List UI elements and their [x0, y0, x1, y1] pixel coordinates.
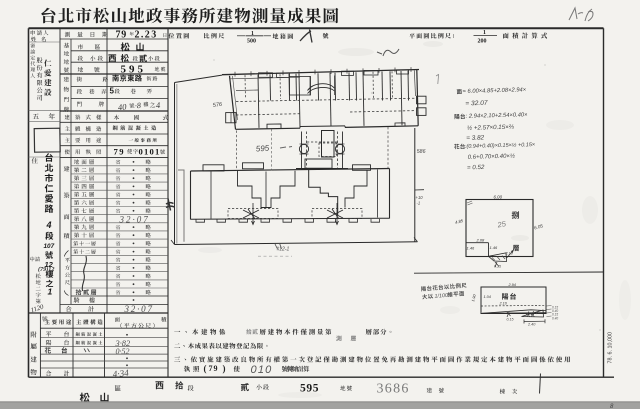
svg-text:2.08: 2.08 [476, 238, 486, 243]
svg-text:4: 4 [46, 220, 52, 230]
svg-text:2.10: 2.10 [499, 302, 508, 306]
svg-text:4: 4 [155, 100, 161, 110]
svg-text:200: 200 [478, 38, 487, 44]
svg-text:0.15: 0.15 [507, 318, 514, 322]
svg-text:): ) [223, 364, 226, 374]
svg-text:1.46: 1.46 [467, 246, 476, 251]
svg-text:= 3.82: = 3.82 [466, 134, 485, 141]
svg-text:3686: 3686 [377, 381, 410, 396]
svg-text:+10: +10 [416, 195, 424, 200]
svg-text:6.00: 6.00 [494, 195, 503, 200]
svg-text:0.6+0.70×0.40×½: 0.6+0.70×0.40×½ [468, 153, 515, 161]
svg-text:(79)12: (79)12 [38, 266, 55, 273]
svg-text:½ +2.57×0.15×⅔: ½ +2.57×0.15×⅔ [467, 124, 515, 132]
svg-text:#12-1: #12-1 [277, 247, 290, 253]
svg-text:-1: -1 [417, 201, 421, 206]
svg-text:2.94: 2.94 [508, 283, 516, 287]
svg-text::(0.94+0.40)×0.15×½ +0.15×: :(0.94+0.40)×0.15×½ +0.15× [465, 141, 535, 150]
svg-text:79: 79 [114, 146, 126, 156]
svg-text:79: 79 [209, 364, 219, 373]
svg-text:5: 5 [110, 86, 115, 95]
svg-text:4.85: 4.85 [454, 218, 464, 225]
svg-text::: : [453, 34, 455, 40]
svg-text:595: 595 [256, 144, 270, 154]
svg-text:1: 1 [483, 30, 486, 36]
svg-text:1.46: 1.46 [490, 245, 499, 250]
svg-text:2.23: 2.23 [135, 30, 158, 41]
svg-text:595: 595 [121, 63, 147, 75]
svg-text:0.40: 0.40 [552, 316, 558, 320]
svg-text:586: 586 [417, 149, 426, 155]
svg-text:2.10: 2.10 [505, 252, 514, 256]
svg-text:0·52: 0·52 [116, 347, 130, 356]
svg-text:32·07: 32·07 [124, 304, 154, 314]
svg-text:1/100: 1/100 [434, 293, 448, 300]
svg-text:0101: 0101 [139, 146, 161, 156]
svg-text:= 6.00×4.85+2.08×2.94×: = 6.00×4.85+2.08×2.94× [462, 87, 526, 95]
svg-text:79: 79 [116, 30, 128, 41]
svg-text:= 32.07: = 32.07 [465, 100, 488, 108]
svg-text:32·07: 32·07 [119, 215, 150, 225]
svg-text:= 0.52: = 0.52 [467, 164, 485, 171]
svg-text:576: 576 [212, 102, 223, 109]
svg-text:40: 40 [117, 101, 127, 112]
svg-text:2.40: 2.40 [527, 323, 536, 327]
svg-text:78. 6. 10,000: 78. 6. 10,000 [608, 332, 614, 363]
svg-text:107: 107 [44, 243, 55, 250]
svg-text:010: 010 [251, 364, 273, 376]
svg-text:25: 25 [496, 219, 508, 230]
svg-text:·8: ·8 [134, 101, 141, 111]
svg-text:500: 500 [247, 38, 256, 44]
svg-text:0.15: 0.15 [494, 265, 501, 269]
svg-text:6.05: 6.05 [533, 223, 543, 230]
svg-text:1.04: 1.04 [484, 295, 491, 299]
svg-text:1: 1 [48, 287, 53, 297]
svg-text:(: ( [204, 364, 207, 374]
svg-text:4·34: 4·34 [112, 368, 129, 380]
svg-text:1.90: 1.90 [471, 293, 477, 302]
svg-text:: 2.94×2.10+2.54×0.40×: : 2.94×2.10+2.54×0.40× [466, 112, 529, 120]
